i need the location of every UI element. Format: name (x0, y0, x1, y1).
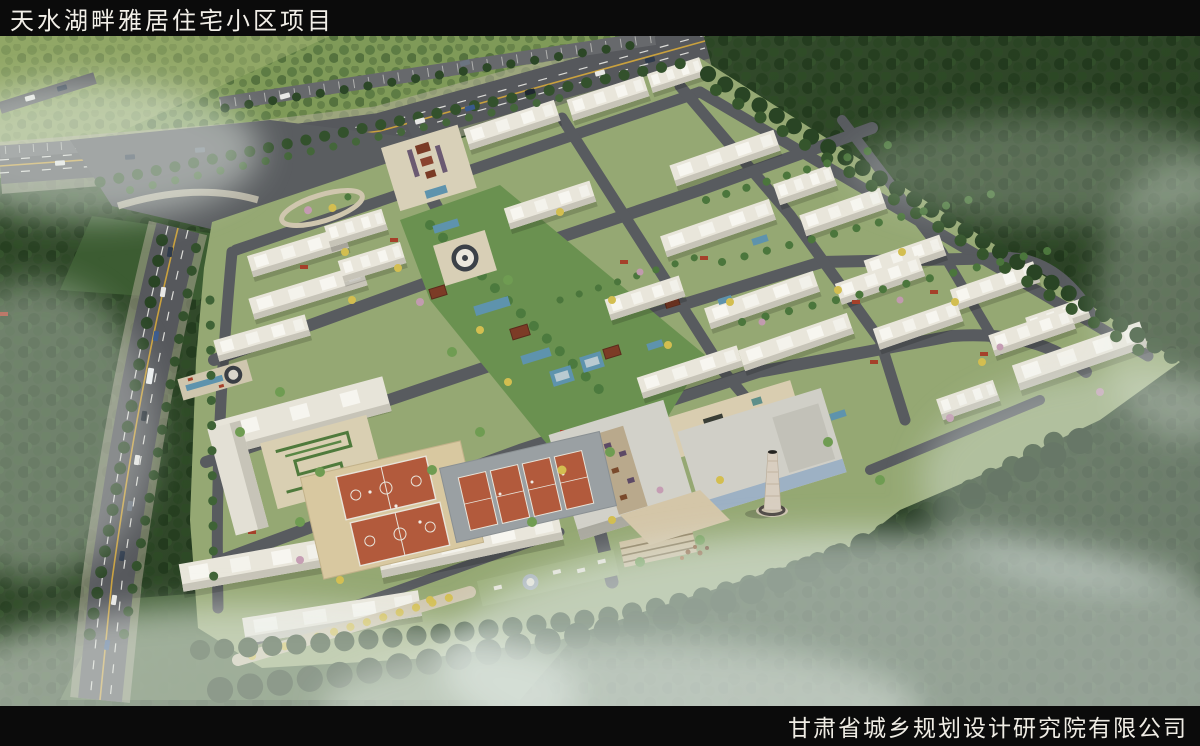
design-company-name: 甘肃省城乡规划设计研究院有限公司 (788, 709, 1200, 743)
rendering-board: 天水湖畔雅居住宅小区项目 甘肃省城乡规划设计研究院有限公司 (0, 0, 1200, 746)
title-bar: 天水湖畔雅居住宅小区项目 (0, 0, 1200, 36)
project-title: 天水湖畔雅居住宅小区项目 (0, 1, 334, 36)
credit-bar: 甘肃省城乡规划设计研究院有限公司 (0, 706, 1200, 746)
aerial-site-rendering (0, 0, 1200, 746)
